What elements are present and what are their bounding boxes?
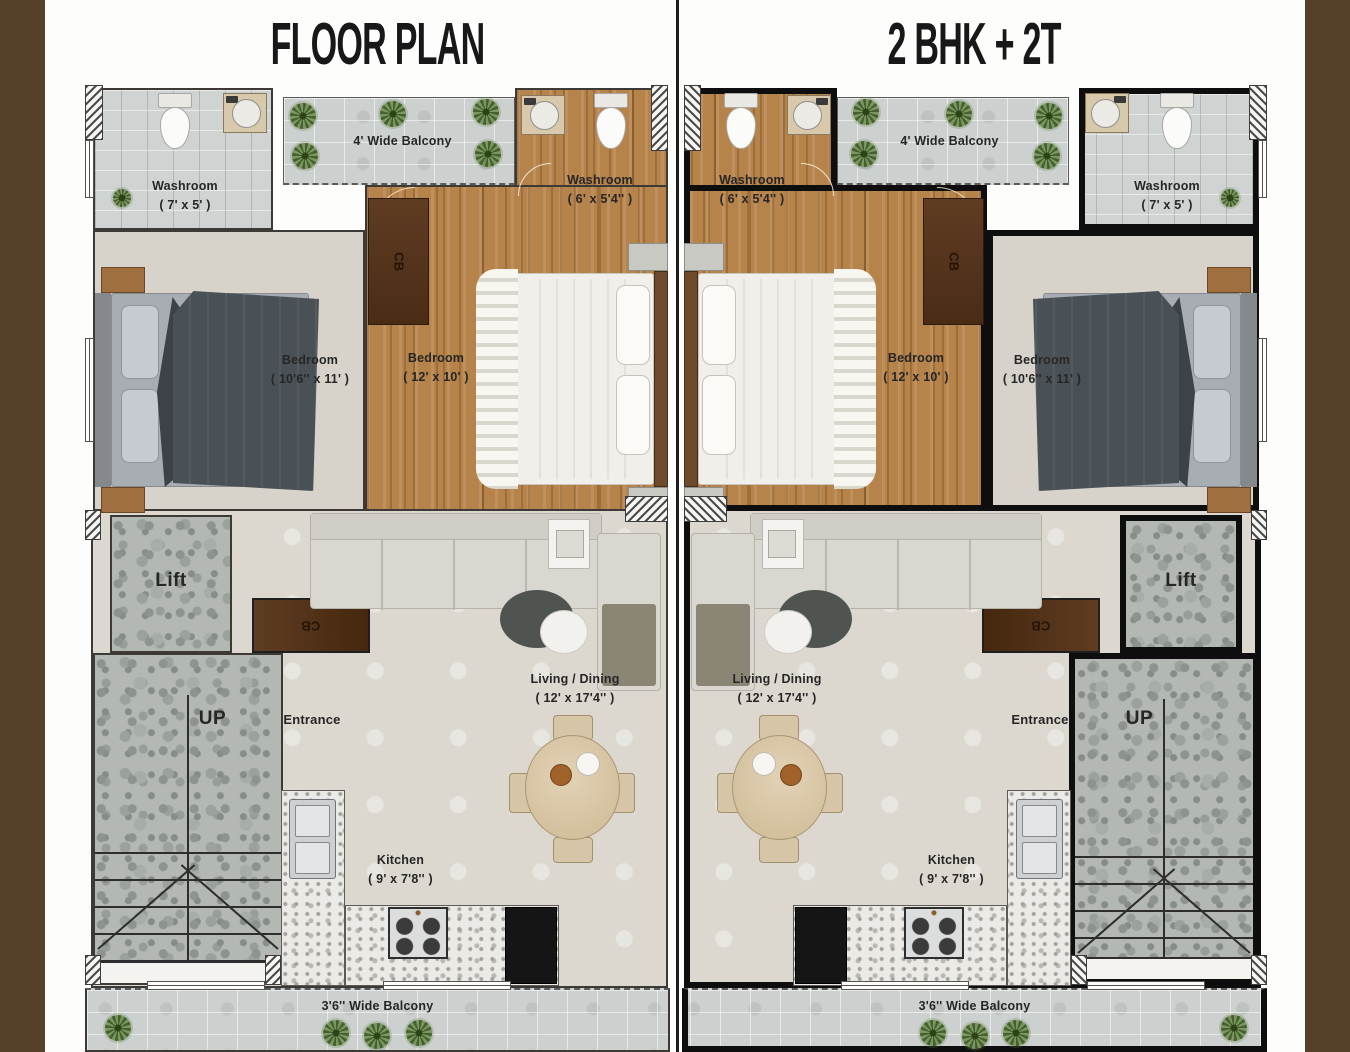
sofa-chaise: [597, 533, 661, 691]
window: [147, 981, 265, 990]
bed-dark: [95, 267, 321, 513]
column-hatch: [265, 955, 281, 985]
pillow: [616, 375, 650, 455]
nightstand: [628, 243, 668, 271]
pillow: [616, 285, 650, 365]
room-name: 4' Wide Balcony: [320, 132, 485, 151]
sofa-chaise: [691, 533, 755, 691]
washroom-small-label: Washroom ( 7' x 5' ): [1097, 177, 1237, 215]
column-hatch: [684, 496, 727, 522]
plant-icon: [473, 99, 499, 125]
room-name: Entrance: [981, 710, 1099, 730]
refrigerator: [795, 907, 847, 984]
room-name: Washroom: [1097, 177, 1237, 196]
pillow: [121, 305, 159, 379]
room-name: Bedroom: [967, 351, 1117, 370]
unit-type-title: 2 BHK + 2T: [682, 8, 1267, 78]
bed-duvet: [1033, 291, 1179, 491]
bedroom-second-label: Bedroom ( 10'6'' x 11' ): [967, 351, 1117, 389]
bed-headboard: [1241, 293, 1257, 487]
window: [85, 140, 94, 198]
bed-headboard: [654, 271, 668, 487]
faucet: [524, 98, 536, 105]
side-table: [548, 519, 590, 569]
nightstand: [101, 487, 145, 513]
column-hatch: [684, 85, 701, 151]
page-title: FLOOR PLAN: [85, 8, 670, 78]
column-hatch: [1251, 510, 1267, 540]
room-dims: ( 12' x 17'4'' ): [500, 689, 650, 708]
room-dims: ( 6' x 5'4'' ): [530, 190, 670, 209]
plant-icon: [292, 143, 318, 169]
cupboard-text: CB: [301, 616, 320, 636]
toilet-tank: [1160, 93, 1194, 108]
bed-headboard: [95, 293, 111, 487]
cupboard-label: CB: [924, 199, 983, 324]
room-name: Washroom: [115, 177, 255, 196]
entrance-label: Entrance: [253, 710, 371, 730]
plant-icon: [1036, 103, 1062, 129]
bhk-title: 2 BHK + 2T: [888, 8, 1061, 78]
toilet-tank: [594, 93, 628, 108]
stair-landing: [95, 961, 281, 983]
cupboard-text: CB: [944, 252, 964, 271]
faucet: [226, 96, 238, 103]
washbasin: [223, 93, 267, 133]
bed-headboard: [684, 271, 698, 487]
washbasin: [1085, 93, 1129, 133]
bedroom-second-label: Bedroom ( 10'6'' x 11' ): [235, 351, 385, 389]
room-name: 3'6'' Wide Balcony: [290, 997, 465, 1016]
toilet: [593, 93, 629, 151]
room-name: Lift: [115, 567, 227, 596]
stairs-up-label: UP: [170, 705, 255, 734]
faucet: [816, 98, 828, 105]
room-name: Bedroom: [235, 351, 385, 370]
room-dims: ( 12' x 10' ): [850, 368, 982, 387]
round-rug-light: [540, 610, 588, 654]
nightstand: [684, 243, 724, 271]
column-hatch: [1071, 955, 1087, 985]
toilet-bowl: [596, 107, 626, 149]
bedroom-master-label: Bedroom ( 12' x 10' ): [850, 349, 982, 387]
room-dims: ( 12' x 10' ): [370, 368, 502, 387]
column-hatch: [1251, 955, 1267, 985]
balcony-bottom-label: 3'6'' Wide Balcony: [290, 997, 465, 1016]
table-bowl: [780, 764, 802, 786]
bedroom-master-label: Bedroom ( 12' x 10' ): [370, 349, 502, 387]
room-dims: ( 6' x 5'4'' ): [682, 190, 822, 209]
dining-chair: [553, 837, 593, 863]
pillow: [121, 389, 159, 463]
apartment-unit-left: CB CB: [85, 85, 670, 1052]
room-dims: ( 9' x 7'8'' ): [884, 870, 1019, 889]
plant-icon: [946, 101, 972, 127]
room-name: UP: [1097, 705, 1182, 734]
washbasin: [521, 95, 565, 135]
stairs-up-label: UP: [1097, 705, 1182, 734]
balcony-top-label: 4' Wide Balcony: [867, 132, 1032, 151]
toilet: [1159, 93, 1195, 151]
table-plate: [752, 752, 776, 776]
window: [1258, 338, 1267, 442]
lift-label: Lift: [1125, 567, 1237, 596]
bedroom-cupboard: CB: [923, 198, 984, 325]
column-hatch: [85, 85, 103, 140]
window: [383, 981, 511, 990]
room-name: 3'6'' Wide Balcony: [887, 997, 1062, 1016]
dining-table: [732, 735, 827, 840]
toilet-bowl: [160, 107, 190, 149]
room-name: Living / Dining: [702, 670, 852, 689]
room-name: Bedroom: [370, 349, 502, 368]
plant-icon: [1034, 143, 1060, 169]
kitchen-label: Kitchen ( 9' x 7'8'' ): [333, 851, 468, 889]
lift-label: Lift: [115, 567, 227, 596]
table-bowl: [550, 764, 572, 786]
pillow: [702, 375, 736, 455]
room-name: Bedroom: [850, 349, 982, 368]
room-dims: ( 10'6'' x 11' ): [235, 370, 385, 389]
bedroom-cupboard: CB: [368, 198, 429, 325]
plant-icon: [290, 103, 316, 129]
window: [1258, 140, 1267, 198]
kitchen-label: Kitchen ( 9' x 7'8'' ): [884, 851, 1019, 889]
unit-divider-wall: [676, 0, 679, 1052]
room-name: Washroom: [682, 171, 822, 190]
dining-table: [525, 735, 620, 840]
stair-divider: [1163, 699, 1165, 967]
washbasin: [787, 95, 831, 135]
round-rug-light: [764, 610, 812, 654]
room-name: Washroom: [530, 171, 670, 190]
room-name: 4' Wide Balcony: [867, 132, 1032, 151]
room-dims: ( 10'6'' x 11' ): [967, 370, 1117, 389]
plant-icon: [105, 1015, 131, 1041]
toilet-bowl: [726, 107, 756, 149]
room-dims: ( 7' x 5' ): [1097, 196, 1237, 215]
plant-icon: [323, 1020, 349, 1046]
window: [841, 981, 969, 990]
stair-divider: [187, 695, 189, 963]
bed-white: [684, 243, 872, 515]
floor-plan-title: FLOOR PLAN: [271, 8, 485, 78]
cupboard-label: CB: [369, 199, 428, 324]
washroom-ensuite-label: Washroom ( 6' x 5'4'' ): [682, 171, 822, 209]
living-dining-label: Living / Dining ( 12' x 17'4'' ): [500, 670, 650, 708]
pillow: [1193, 389, 1231, 463]
kitchen-sink: [289, 799, 336, 879]
cupboard-text: CB: [1031, 616, 1050, 636]
plant-icon: [1221, 1015, 1247, 1041]
living-dining-label: Living / Dining ( 12' x 17'4'' ): [702, 670, 852, 708]
faucet: [1114, 96, 1126, 103]
side-table: [762, 519, 804, 569]
window: [1087, 981, 1205, 990]
room-name: Living / Dining: [500, 670, 650, 689]
bed-dark: [1031, 267, 1257, 513]
stove: [904, 907, 964, 959]
room-dims: ( 12' x 17'4'' ): [702, 689, 852, 708]
entrance-label: Entrance: [981, 710, 1099, 730]
toilet: [157, 93, 193, 151]
table-plate: [576, 752, 600, 776]
nightstand: [1207, 487, 1251, 513]
balcony-bottom-label: 3'6'' Wide Balcony: [887, 997, 1062, 1016]
room-name: Entrance: [253, 710, 371, 730]
column-hatch: [85, 510, 101, 540]
column-hatch: [651, 85, 668, 151]
room-dims: ( 7' x 5' ): [115, 196, 255, 215]
plant-icon: [406, 1020, 432, 1046]
toilet: [723, 93, 759, 151]
bed-white: [480, 243, 668, 515]
toilet-tank: [724, 93, 758, 108]
plant-icon: [962, 1023, 988, 1049]
column-hatch: [625, 496, 668, 522]
room-name: UP: [170, 705, 255, 734]
bed-duvet: [173, 291, 319, 491]
pillow: [702, 285, 736, 365]
toilet-bowl: [1162, 107, 1192, 149]
nightstand: [101, 267, 145, 293]
stair-landing: [1075, 957, 1253, 979]
plant-icon: [380, 101, 406, 127]
plant-icon: [1003, 1020, 1029, 1046]
cupboard-text: CB: [389, 252, 409, 271]
column-hatch: [1249, 85, 1267, 140]
bed-duvet: [524, 279, 628, 479]
washroom-ensuite-label: Washroom ( 6' x 5'4'' ): [530, 171, 670, 209]
left-frame-strip: [0, 0, 45, 1052]
plant-icon: [853, 99, 879, 125]
stove: [388, 907, 448, 959]
toilet-tank: [158, 93, 192, 108]
plant-icon: [364, 1023, 390, 1049]
apartment-unit-right: CB CB: [682, 85, 1267, 1052]
window: [85, 338, 94, 442]
staircase: [93, 653, 283, 985]
column-hatch: [85, 955, 101, 985]
plant-icon: [920, 1020, 946, 1046]
room-name: Lift: [1125, 567, 1237, 596]
room-name: Kitchen: [333, 851, 468, 870]
staircase: [1069, 653, 1259, 985]
bed-duvet: [724, 279, 828, 479]
refrigerator: [505, 907, 557, 984]
right-frame-strip: [1305, 0, 1350, 1052]
washroom-small-label: Washroom ( 7' x 5' ): [115, 177, 255, 215]
pillow: [1193, 305, 1231, 379]
dining-chair: [759, 837, 799, 863]
kitchen-sink: [1016, 799, 1063, 879]
balcony-top-label: 4' Wide Balcony: [320, 132, 485, 151]
room-name: Kitchen: [884, 851, 1019, 870]
floor-plan-canvas: FLOOR PLAN 2 BHK + 2T CB CB: [0, 0, 1350, 1052]
nightstand: [1207, 267, 1251, 293]
room-dims: ( 9' x 7'8'' ): [333, 870, 468, 889]
